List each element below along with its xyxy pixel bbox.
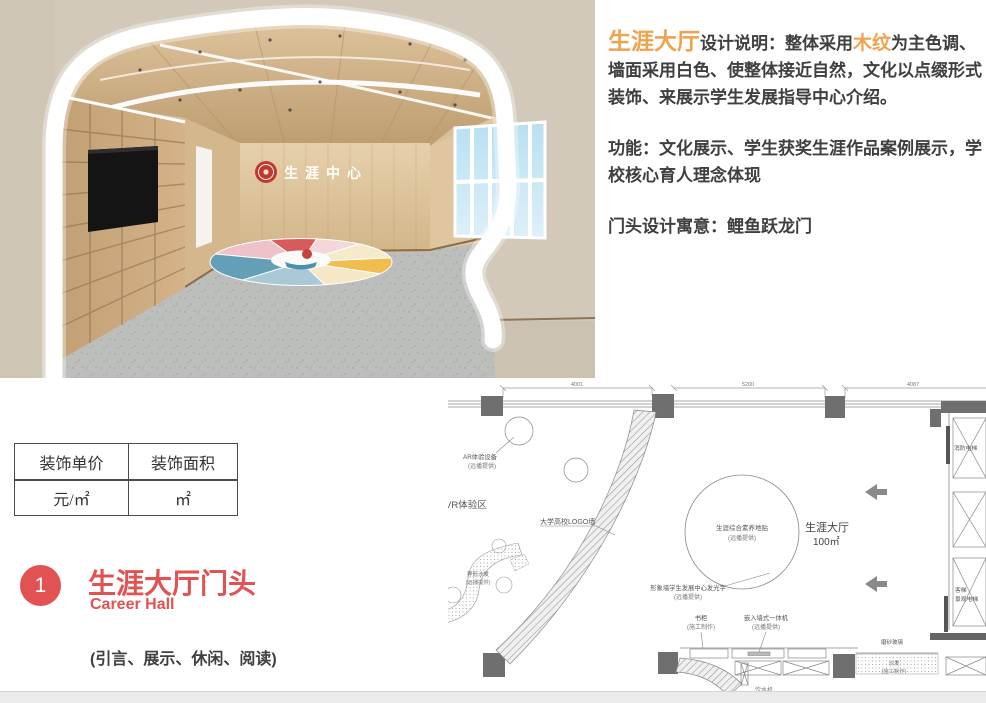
crossed-boxes-bottom — [735, 661, 829, 685]
logo-sign: 生涯中心 — [255, 161, 368, 183]
leader-line — [496, 437, 514, 453]
sofa-label: 沙发 — [888, 659, 900, 667]
svg-text:(远播提供): (远播提供) — [468, 462, 496, 470]
page-bottom-strip — [0, 691, 986, 703]
design-description: 生涯大厅设计说明：整体采用木纹为主色调、墙面采用白色、使整体接近自然，文化以点缀… — [608, 28, 984, 264]
bookcase-label: 书柜 — [695, 613, 708, 622]
col-header-area: 装饰面积 — [129, 444, 238, 481]
table-row: 元/㎡ ㎡ — [15, 480, 238, 516]
description-paragraph-1: 生涯大厅设计说明：整体采用木纹为主色调、墙面采用白色、使整体接近自然，文化以点缀… — [608, 28, 984, 111]
wood-grain-accent: 木纹 — [853, 33, 891, 54]
room-interior: 生涯中心 — [54, 14, 506, 378]
machine-label: 嵌入墙式一体机 — [744, 613, 789, 622]
feature-wall-label: 形象墙学生发展中心发光字 — [650, 583, 726, 592]
svg-text:景观电梯: 景观电梯 — [955, 595, 978, 603]
section-number-badge: 1 — [20, 565, 61, 606]
hall-name-accent: 生涯大厅 — [608, 28, 700, 54]
dim-label-1: 4001 — [571, 382, 583, 388]
logo-text: 生涯中心 — [284, 165, 368, 181]
floor-decal — [210, 239, 392, 286]
passenger-elevator-label: 客梯 — [955, 586, 967, 594]
vr-zone-label: VR体验区 — [448, 499, 487, 511]
floor-plan: 4001 5200 4087 AR体验设备 (远播提供) VR体验区 大学高校L… — [448, 380, 986, 703]
embedded-machine — [748, 652, 770, 656]
tv-screen — [88, 146, 158, 232]
section-note: (引言、展示、休闲、阅读) — [90, 645, 277, 669]
back-wall — [240, 143, 430, 252]
door-opening — [196, 146, 212, 248]
area-value: ㎡ — [129, 480, 238, 516]
top-wall — [448, 401, 986, 407]
svg-text:(远播提供): (远播提供) — [674, 593, 702, 601]
ar-device-label: AR体验设备 — [463, 452, 498, 461]
entry-arrow-icon — [865, 576, 887, 592]
svg-text:(远播提供): (远播提供) — [466, 578, 491, 586]
floor-sticker-circle — [685, 475, 799, 589]
dim-label-2: 5200 — [742, 382, 754, 388]
hall-area-label: 100㎡ — [813, 536, 840, 548]
svg-text:(远播提供): (远播提供) — [752, 623, 780, 631]
stool-circle — [448, 587, 461, 603]
dim-label-3: 4087 — [907, 382, 919, 388]
svg-text:(施工制作): (施工制作) — [882, 667, 907, 675]
career-hall-render: 生涯中心 — [0, 0, 595, 378]
section-subtitle: Career Hall — [90, 596, 175, 614]
doorhead-wall-upper — [496, 410, 656, 664]
ar-device-circle — [505, 417, 533, 445]
unit-price-value: 元/㎡ — [15, 480, 129, 516]
stool-circle — [564, 458, 588, 482]
slide-page: 生涯中心 — [0, 0, 986, 703]
floor-sticker-label: 生涯综合素养地贴 — [716, 523, 769, 532]
frosted-glass-label: 磨砂玻璃 — [881, 638, 904, 646]
hall-name-label: 生涯大厅 — [805, 520, 849, 534]
shaped-sofa-label: 异形沙发 — [467, 570, 490, 578]
logo-wall-label: 大学高校LOGO墙 — [540, 517, 595, 526]
col-header-unit-price: 装饰单价 — [15, 444, 129, 481]
stool-circle — [496, 577, 512, 593]
description-paragraph-3: 门头设计寓意：鲤鱼跃龙门 — [608, 213, 984, 240]
entry-arrow-icon — [865, 484, 887, 500]
fire-elevator-label: 消防电梯 — [954, 444, 977, 452]
svg-text:(施工制作): (施工制作) — [687, 623, 715, 631]
pricing-table: 装饰单价 装饰面积 元/㎡ ㎡ — [14, 443, 238, 516]
description-paragraph-2: 功能：文化展示、学生获奖生涯作品案例展示，学校核心育人理念体现 — [608, 135, 984, 189]
svg-text:(远播提供): (远播提供) — [728, 534, 756, 542]
